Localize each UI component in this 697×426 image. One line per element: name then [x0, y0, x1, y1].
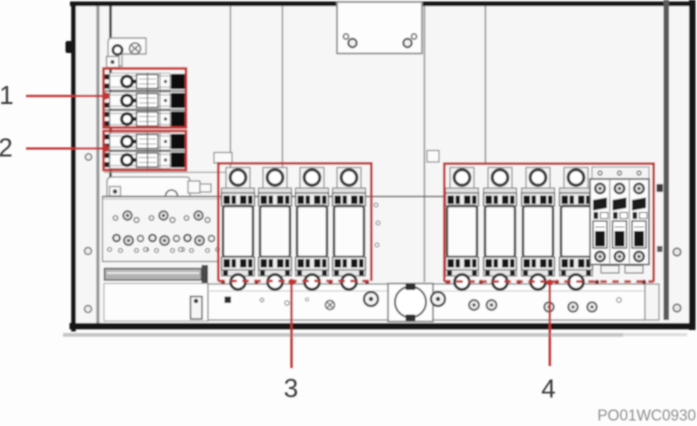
svg-text:1: 1 [0, 80, 14, 110]
svg-text:2: 2 [0, 133, 13, 163]
svg-text:4: 4 [541, 374, 555, 404]
svg-text:3: 3 [284, 373, 298, 403]
svg-text:PO01WC0930: PO01WC0930 [597, 408, 696, 425]
